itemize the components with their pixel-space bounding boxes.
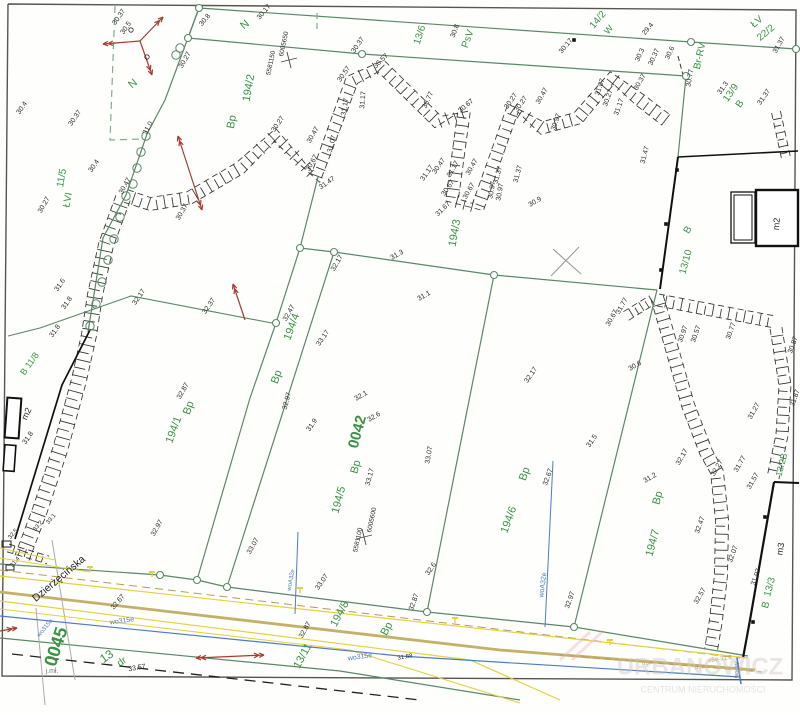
svg-text:m3: m3 (774, 542, 786, 556)
svg-text:m2: m2 (771, 217, 782, 230)
svg-text:Bp: Bp (225, 114, 239, 129)
svg-text:URBANOWICZ: URBANOWICZ (617, 653, 784, 680)
svg-text:CENTRUM NIERUCHOMOŚCI: CENTRUM NIERUCHOMOŚCI (641, 683, 766, 694)
